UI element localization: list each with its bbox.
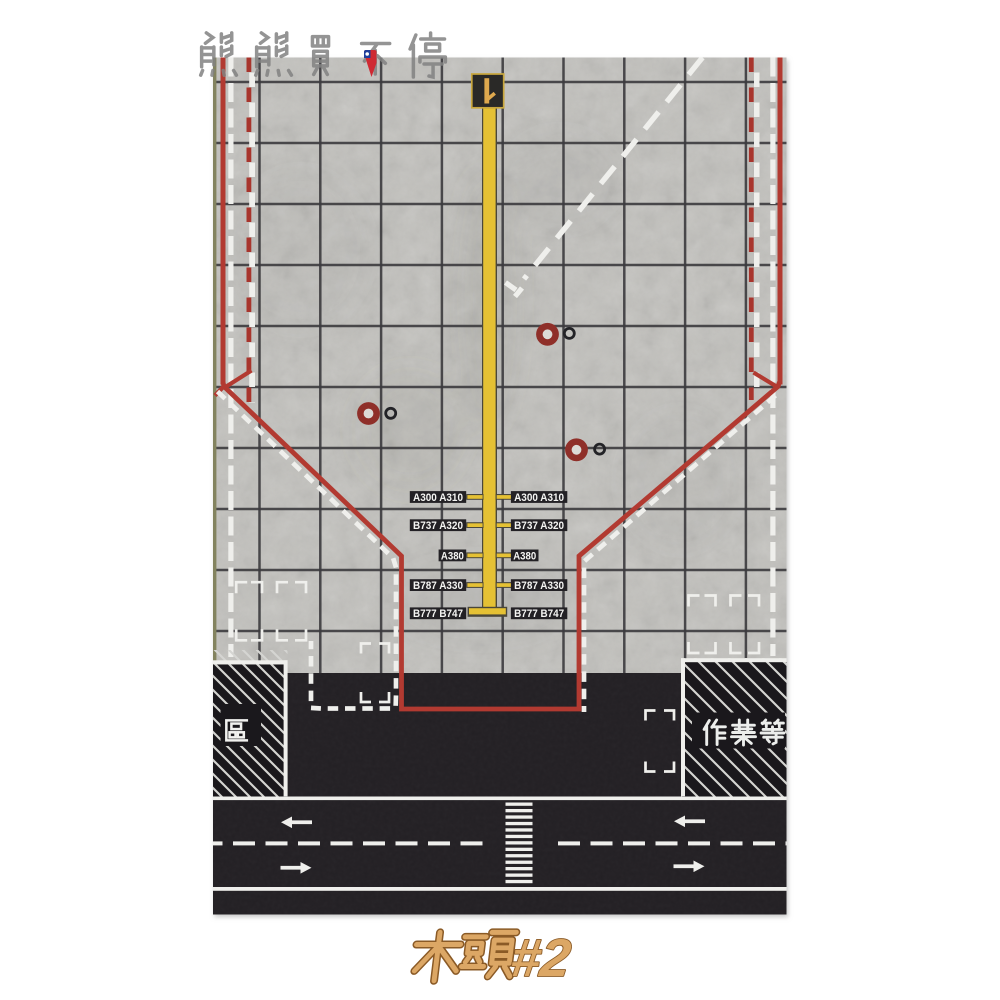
svg-text:#2: #2	[508, 929, 575, 988]
svg-text:A300 A310: A300 A310	[514, 492, 564, 504]
svg-text:B737 A320: B737 A320	[514, 520, 564, 532]
svg-text:B787 A330: B787 A330	[514, 580, 564, 592]
svg-text:B777 B747: B777 B747	[514, 608, 564, 620]
svg-text:A300 A310: A300 A310	[413, 492, 463, 504]
svg-text:A380: A380	[441, 550, 464, 562]
svg-text:B737 A320: B737 A320	[413, 520, 463, 532]
svg-text:A380: A380	[513, 550, 536, 562]
svg-text:B777 B747: B777 B747	[413, 608, 463, 620]
svg-text:B787 A330: B787 A330	[413, 580, 463, 592]
